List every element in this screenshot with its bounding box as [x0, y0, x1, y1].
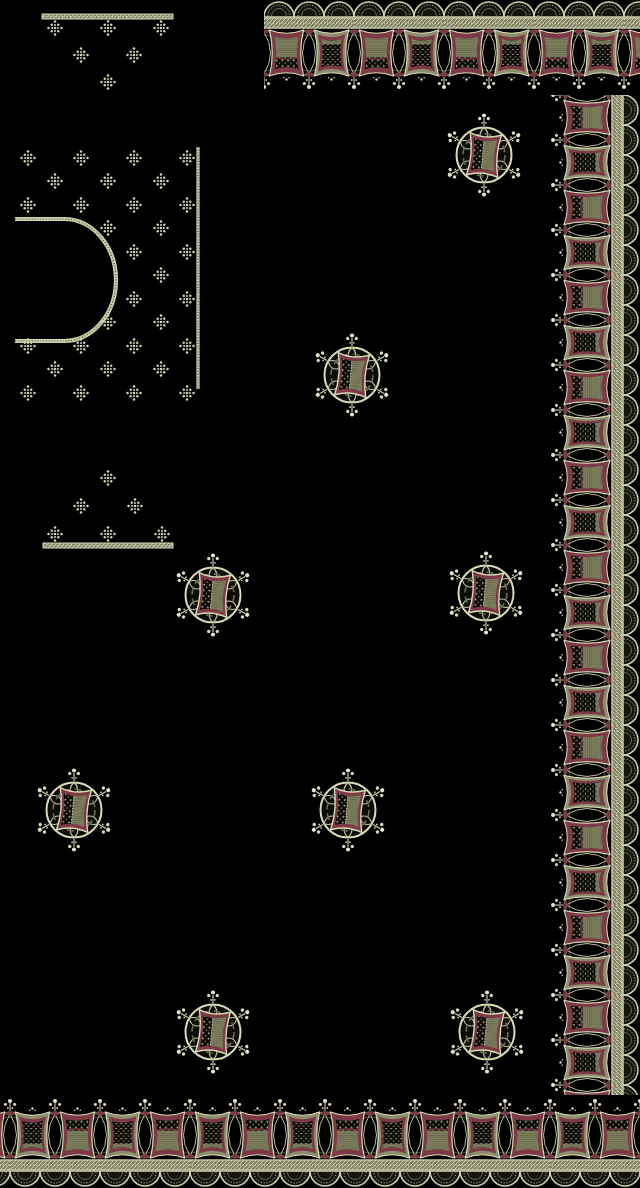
embroidery-artwork [0, 0, 640, 1188]
border-top [264, 0, 640, 96]
border-right [544, 95, 640, 1095]
border-bottom [0, 1092, 640, 1188]
embroidery-design-canvas [0, 0, 640, 1188]
